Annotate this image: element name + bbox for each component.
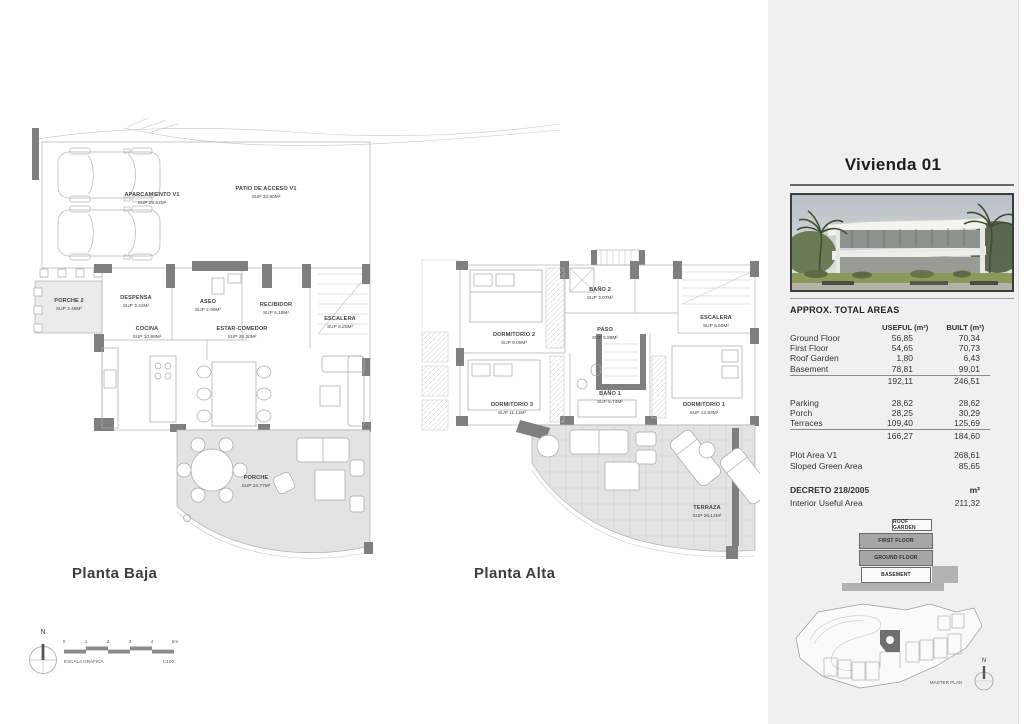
room-sup: SUP 9.00M² [501,340,527,346]
room-label: ESTAR-COMEDOR [217,326,268,332]
room-sup: SUP 5.88M² [592,335,618,341]
stack-terrain-step [932,566,958,583]
planter-outlines [422,260,460,430]
scale-tick: 3 [129,639,132,644]
table-row: First Floor54,6570,73 [790,343,990,353]
room-sup: SUP 11.11M² [498,410,526,416]
graphic-scale: 0 1 2 3 4 5m ESCALA GRÁFICA 1:100 [62,636,202,668]
table-row: Roof Garden1,806,43 [790,353,990,363]
unit-title: Vivienda 01 [768,155,1018,175]
stack-roof-garden: ROOF GARDEN [892,519,932,531]
stack-first-floor: FIRST FLOOR [859,533,933,549]
room-sup: SUP 10.86M² [133,334,162,340]
patio-boundary [32,128,370,278]
areas-table: USEFUL (m²) BUILT (m²) Ground Floor56,85… [790,321,990,508]
exterior-total-row: 166,27184,60 [790,429,990,441]
scale-tick: 4 [151,639,154,644]
col-built: BUILT (m²) [940,323,990,332]
room-label: ASEO [200,299,217,305]
north-needle [42,644,45,660]
room-label: BAÑO 1 [599,390,621,397]
photo-divider [790,298,1014,299]
porch-area [177,430,373,558]
svg-text:N: N [982,658,986,664]
stack-ground-floor: GROUND FLOOR [859,550,933,566]
room-sup: SUP 3.48M² [56,306,82,312]
room-label: TERRAZA [693,505,720,511]
room-label: PATIO DE ACCESO V1 [235,186,296,192]
room-sup: SUP 26.12M² [693,513,722,519]
master-plan-label: MASTER PLAN [930,680,962,685]
room-label: PORCHE [244,475,269,481]
planta-alta-drawing: DORMITORIO 2 SUP 9.00M² BAÑO 2 SUP 3.07M… [420,248,760,578]
interior-useful-row: Interior Useful Area211,32 [790,498,990,508]
room-sup: SUP 24.77M² [242,483,271,489]
room-label: DESPENSA [120,295,152,301]
room-sup: SUP 28.62M² [138,200,167,206]
decreto-row: DECRETO 218/2005m² [790,485,990,495]
table-row: Sloped Green Area85,65 [790,461,990,471]
title-rule [790,184,1014,186]
stack-basement: BASEMENT [861,567,931,583]
north-compass: N [22,624,66,686]
unit-info-panel: Vivienda 01 [768,0,1019,724]
room-label: DORMITORIO 2 [493,332,535,338]
room-label: PASO [597,327,613,333]
room-sup: SUP 3.07M² [587,295,613,301]
master-plan-compass: N [975,658,993,690]
scale-tick: 0 [63,639,66,644]
room-sup: SUP 2.90M² [195,307,221,313]
room-label: ESCALERA [700,315,732,321]
room-sup: SUP 5.74M² [597,399,623,405]
street-edge-lines [32,118,560,146]
master-plan-map: MASTER PLAN N [788,600,1000,710]
room-label: DORMITORIO 1 [683,402,725,408]
room-label: COCINA [136,326,159,332]
room-label: BAÑO 2 [589,286,611,293]
plan-sheet: APARCAMIENTO V1 SUP 28.62M² PATIO DE ACC… [0,0,1024,724]
scale-tick: 1 [85,639,88,644]
room-sup: SUP 28.30M² [228,334,257,340]
table-row: Ground Floor56,8570,34 [790,333,990,343]
room-sup: SUP 6.50M² [703,323,729,329]
terrace-area [516,418,760,559]
scale-tick: 2 [107,639,110,644]
north-label: N [40,629,45,636]
table-row: Plot Area V1268,61 [790,450,990,460]
room-label: PORCHE 2 [54,298,83,304]
table-row: Porch28,2530,29 [790,408,990,418]
floors-total-row: 192,11246,51 [790,375,990,387]
room-label: ESCALERA [324,316,356,322]
scale-tick: 5m [172,639,179,644]
room-sup: SUP 3.41M² [123,303,149,309]
stack-terrain-slab [842,583,944,591]
room-sup: SUP 12.83M² [690,410,719,416]
table-row: Terraces109,40125,69 [790,418,990,428]
areas-header: USEFUL (m²) BUILT (m²) [790,321,990,333]
planta-alta-title: Planta Alta [474,565,555,582]
table-row: Parking28,6228,62 [790,398,990,408]
room-label: APARCAMIENTO V1 [124,192,179,198]
room-sup: SUP 33.90M² [252,194,281,200]
parked-car [58,206,160,260]
scale-ratio: 1:100 [163,659,175,664]
room-label: RECIBIDOR [260,302,292,308]
room-sup: SUP 6.20M² [327,324,353,330]
areas-title: APPROX. TOTAL AREAS [790,305,899,315]
planta-baja-title: Planta Baja [72,565,157,582]
room-label: DORMITORIO 3 [491,402,533,408]
building-render-image [790,193,1014,292]
ground-floor-walls [94,261,371,432]
table-row: Basement78,8199,01 [790,364,990,374]
col-useful: USEFUL (m²) [870,323,940,332]
scale-caption: ESCALA GRÁFICA [64,658,105,664]
room-sup: SUP 5.16M² [263,310,289,316]
